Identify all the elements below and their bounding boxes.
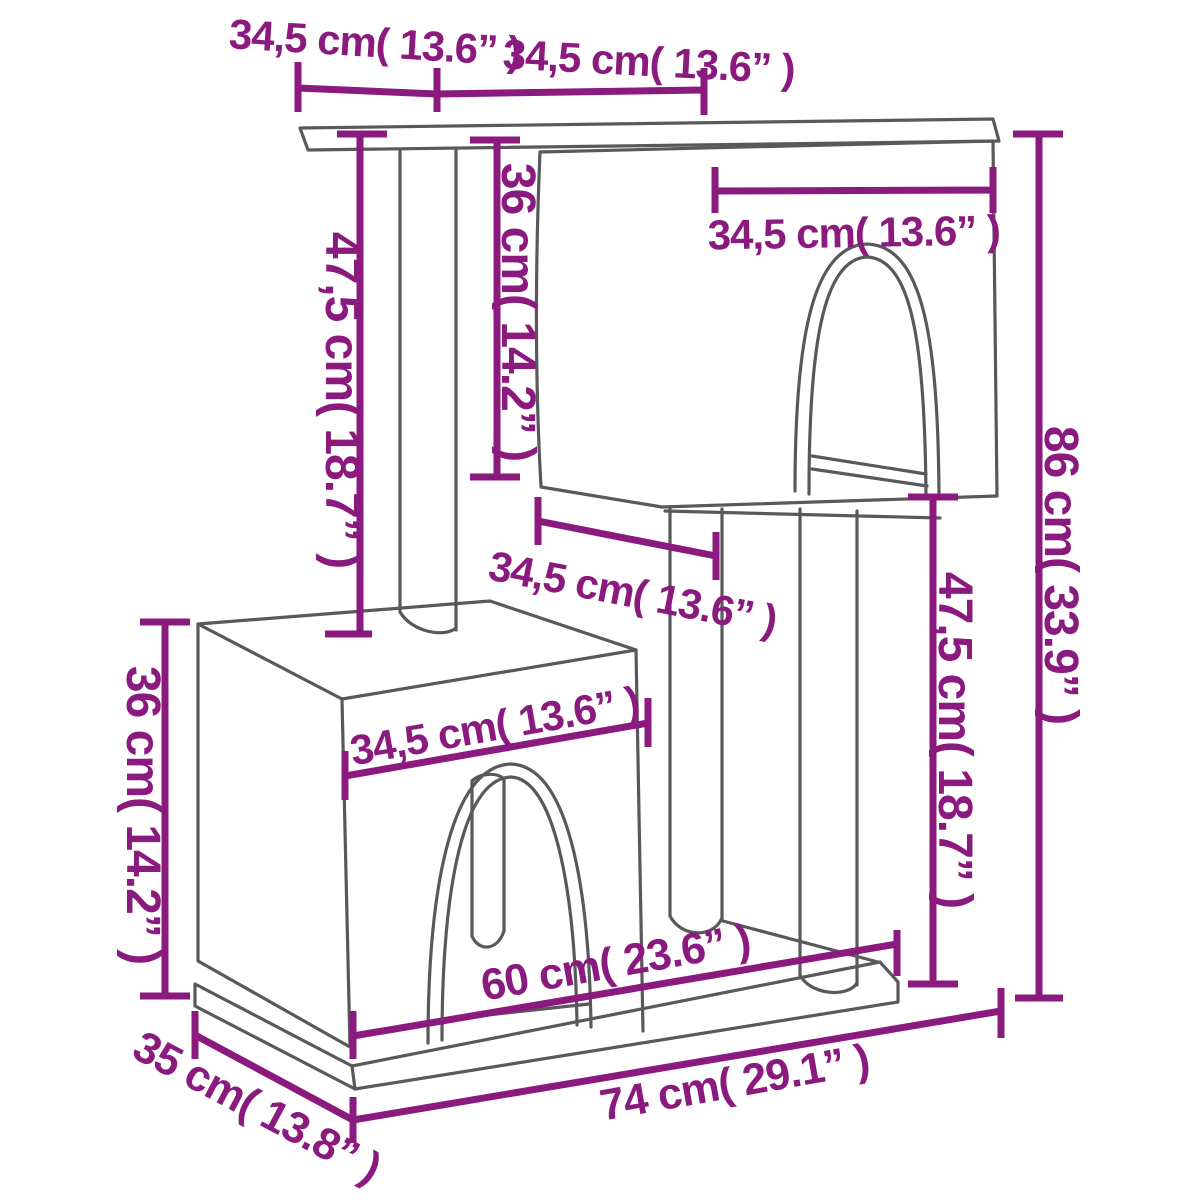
upper-condo-box <box>536 141 997 518</box>
dim-total-height: 86 cm( 33.9” ) <box>1013 134 1087 998</box>
dim-label-lower-condo-height: 36 cm( 14.2” ) <box>116 666 169 964</box>
top-board <box>300 119 999 150</box>
dim-label-upper-condo-width: 34,5 cm( 13.6” ) <box>707 206 1000 258</box>
dim-label-lower-post-height: 47,5 cm( 18.7” ) <box>928 572 981 908</box>
dim-label-middle-width: 34,5 cm( 13.6” ) <box>485 542 781 644</box>
dim-upper-post-height: 47,5 cm( 18.7” ) <box>315 134 387 636</box>
dim-label-top-width-left: 34,5 cm( 13.6” ) <box>228 10 522 75</box>
left-tall-post <box>400 149 456 633</box>
dim-label-top-width-right: 34,5 cm( 13.6” ) <box>502 30 796 92</box>
dim-label-upper-condo-height: 36 cm( 14.2” ) <box>491 163 544 461</box>
dim-base-width: 74 cm( 29.1” ) <box>353 988 1001 1130</box>
right-post <box>800 509 857 992</box>
dim-label-base-width: 74 cm( 29.1” ) <box>596 1035 873 1131</box>
dim-label-total-height: 86 cm( 33.9” ) <box>1034 426 1087 724</box>
dim-upper-condo-width: 34,5 cm( 13.6” ) <box>707 167 1000 259</box>
dim-upper-condo-height: 36 cm( 14.2” ) <box>470 140 544 477</box>
dim-label-upper-post-height: 47,5 cm( 18.7” ) <box>315 232 368 568</box>
dim-lower-condo-height: 36 cm( 14.2” ) <box>116 622 190 996</box>
dimension-diagram: 34,5 cm( 13.6” ) 34,5 cm( 13.6” ) 47,5 c… <box>0 0 1200 1200</box>
dim-middle-width: 34,5 cm( 13.6” ) <box>485 497 781 644</box>
dim-lower-post-height: 47,5 cm( 18.7” ) <box>908 497 981 984</box>
diagram-canvas: 34,5 cm( 13.6” ) 34,5 cm( 13.6” ) 47,5 c… <box>0 0 1200 1200</box>
